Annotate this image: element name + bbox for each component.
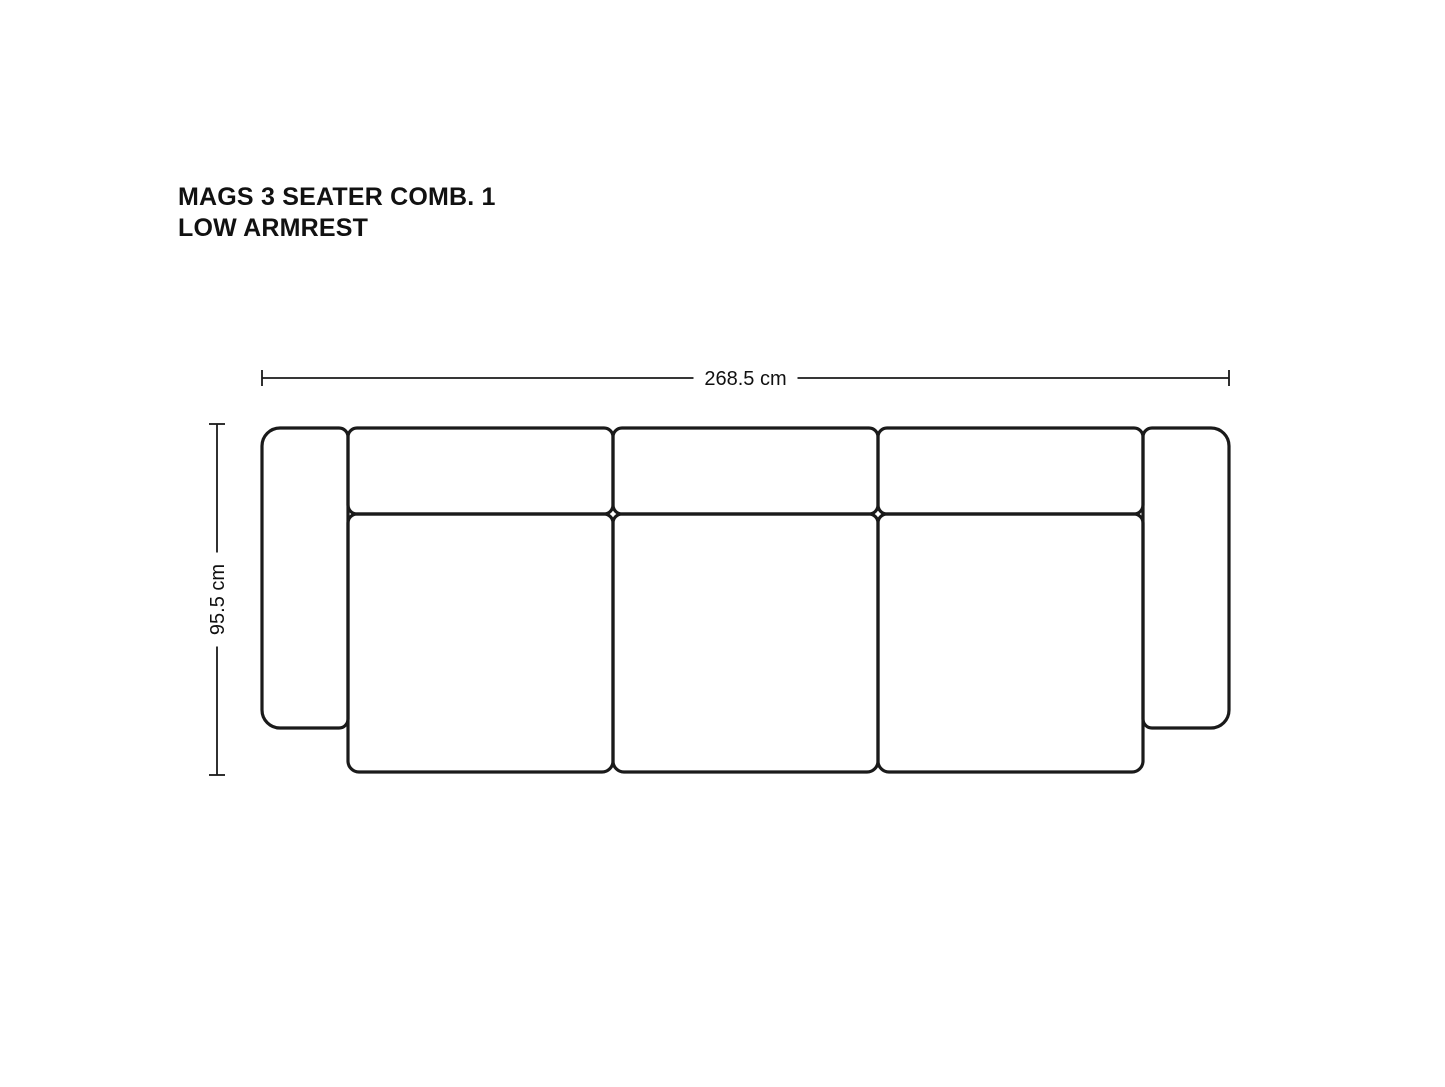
page: MAGS 3 SEATER COMB. 1 LOW ARMREST 268.5 …	[0, 0, 1445, 1087]
seat-cushion-2	[613, 514, 878, 772]
seat-cushion-3	[878, 514, 1143, 772]
sofa-diagram: 268.5 cm95.5 cm	[0, 0, 1445, 1087]
back-cushion-1	[348, 428, 613, 514]
width-dimension-label: 268.5 cm	[704, 368, 786, 390]
left-armrest	[262, 428, 348, 728]
back-cushion-2	[613, 428, 878, 514]
depth-dimension-label: 95.5 cm	[207, 564, 229, 635]
right-armrest	[1143, 428, 1229, 728]
seat-cushion-1	[348, 514, 613, 772]
back-cushion-3	[878, 428, 1143, 514]
